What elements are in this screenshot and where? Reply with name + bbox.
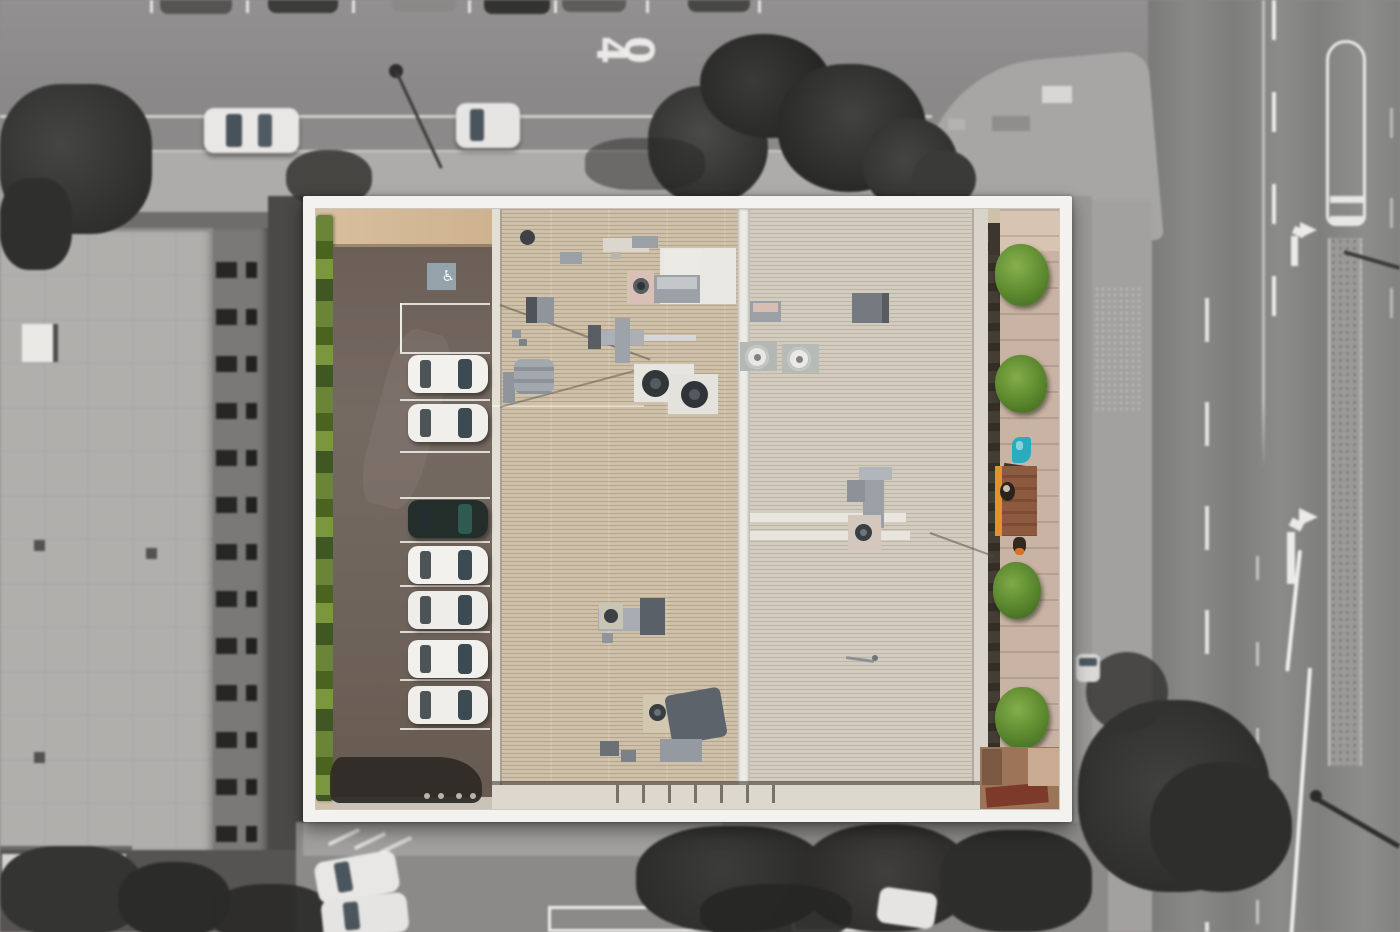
verandah-post: [772, 785, 775, 803]
verandah-post: [668, 785, 671, 803]
parking-bay-line: [400, 585, 490, 587]
parking-bay-line: [400, 451, 490, 453]
utility-box: [1042, 86, 1072, 103]
tree-canopy: [0, 178, 72, 270]
parked-car-body: [204, 108, 299, 153]
parking-bay-line: [400, 497, 490, 499]
car-windshield: [458, 550, 472, 580]
tree-canopy: [700, 884, 852, 932]
car-rear-window: [420, 409, 431, 437]
verandah-post: [720, 785, 723, 803]
parked-car-body: [456, 103, 520, 148]
car-windshield: [226, 114, 242, 147]
parking-bay-line: [554, 0, 557, 13]
parking-bay-line: [380, 836, 412, 854]
car-windshield: [458, 504, 472, 534]
parking-bay-line: [400, 631, 490, 633]
parked-car-roof: [562, 0, 626, 12]
car-windshield: [458, 690, 472, 720]
tree-canopy: [1150, 762, 1292, 892]
car-rear-window: [420, 360, 431, 388]
parking-bay-line: [468, 0, 471, 13]
roof-hatch-mark: [34, 540, 45, 551]
parking-bay-line: [400, 679, 490, 681]
car-rear-window: [258, 114, 272, 147]
parked-car-roof: [268, 0, 338, 13]
parked-car-roof: [160, 0, 232, 14]
parking-bay-line: [646, 0, 649, 13]
tree-canopy: [940, 830, 1092, 932]
verandah-post: [694, 785, 697, 803]
roof-hatch-mark: [34, 752, 45, 763]
aerial-photo-stage: 40: [0, 0, 1400, 932]
parking-bay-line: [400, 352, 490, 354]
utility-box: [948, 119, 965, 130]
awning-post: [456, 793, 462, 799]
car-park-objects: [316, 209, 1059, 809]
parking-bay-line: [400, 728, 490, 730]
parking-bay-line: [150, 0, 153, 13]
utility-box: [992, 116, 1030, 131]
car-rear-window: [420, 596, 431, 624]
parking-bay-line: [352, 0, 355, 13]
car-windshield: [458, 644, 472, 674]
car-windshield: [343, 901, 361, 930]
property-highlight-frame: ♿: [303, 196, 1072, 822]
awning-post: [438, 793, 444, 799]
parking-bay-line: [354, 832, 386, 850]
roof-hatch-mark: [146, 548, 157, 559]
car-rear-window: [420, 691, 431, 719]
verandah-post: [746, 785, 749, 803]
parking-bay-line: [400, 541, 490, 543]
car-windshield: [1079, 658, 1097, 666]
car-windshield: [458, 595, 472, 625]
parking-bay-line: [400, 303, 490, 305]
tree-shadow: [585, 138, 705, 190]
parked-car-roof: [688, 0, 750, 12]
car-rear-window: [420, 505, 431, 533]
car-rear-window: [420, 645, 431, 673]
car-windshield: [458, 359, 472, 389]
parking-bay-line: [246, 0, 249, 13]
parking-bay-line: [328, 828, 360, 846]
parked-car-roof: [392, 0, 456, 12]
awning-post: [424, 793, 430, 799]
tree-canopy: [210, 884, 332, 932]
awning-post: [470, 793, 476, 799]
property-interior: ♿: [316, 209, 1059, 809]
parking-bay-line: [400, 399, 490, 401]
car-rear-window: [420, 551, 431, 579]
car-windshield: [458, 408, 472, 438]
verandah-post: [616, 785, 619, 803]
parking-bay-line: [758, 0, 761, 13]
parked-car-roof: [484, 0, 550, 14]
verandah-post: [642, 785, 645, 803]
car-windshield: [470, 109, 484, 141]
parking-stall-divider: [400, 303, 402, 352]
